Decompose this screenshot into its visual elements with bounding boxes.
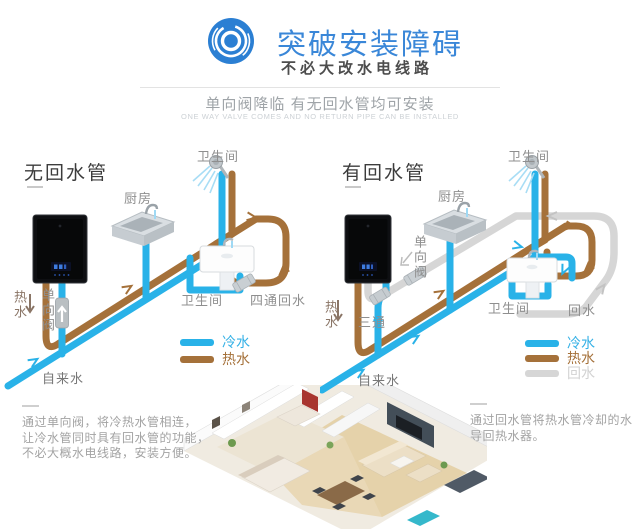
tagline-chinese: 单向阀降临 有无回水管均可安装 (0, 93, 640, 114)
footnote-line: 通过回水管将热水管冷却的水 (470, 413, 640, 429)
label-hot-water: 热水 (10, 290, 29, 320)
label-tap-water: 自来水 (42, 368, 84, 387)
legend-hot-label: 热水 (222, 349, 250, 369)
label-bathroom: 卫生间 (488, 298, 530, 317)
label-kitchen: 厨房 (124, 188, 152, 207)
footnote-line: 让冷水管同时具有回水管的功能， (22, 431, 252, 447)
legend-return: 回水 (525, 363, 595, 383)
footnote-right: 通过回水管将热水管冷却的水 导回热水器。 (470, 403, 640, 444)
water-heater (345, 215, 391, 283)
label-bathroom: 卫生间 (181, 290, 223, 309)
legend-hot-swatch (525, 355, 559, 362)
footnote-dash (470, 403, 487, 405)
diagram-with-return-pipe: 有回水管 (320, 140, 640, 395)
footnote-left: 通过单向阀，将冷热水管相连， 让冷水管同时具有回水管的功能， 不必大概水电线路，… (22, 405, 252, 462)
tagline-english: ONE WAY VALVE COMES AND NO RETURN PIPE C… (0, 112, 640, 121)
check-valve (56, 298, 69, 328)
title-dash (27, 186, 43, 188)
label-return-water: 回水 (568, 300, 596, 319)
label-check-valve: 单向阀 (38, 288, 57, 333)
legend-hot-swatch (180, 356, 214, 363)
label-hot-water: 热水 (321, 300, 340, 330)
water-heater-logo-icon (207, 17, 255, 65)
label-tap-water: 自来水 (358, 370, 400, 389)
label-check-valve: 单向阀 (410, 235, 429, 280)
label-four-way-return: 四通回水 (250, 290, 306, 309)
footnote-line: 不必大概水电线路，安装方便。 (22, 446, 252, 462)
footnote-line: 导回热水器。 (470, 429, 640, 445)
header-divider (140, 87, 500, 88)
legend-return-label: 回水 (567, 363, 595, 383)
page-subtitle: 不必大改水电线路 (281, 57, 433, 78)
label-bathroom-top: 卫生间 (508, 146, 550, 165)
footnote-line: 通过单向阀，将冷热水管相连， (22, 415, 252, 431)
title-dash (345, 186, 361, 188)
water-heater (33, 215, 87, 283)
infographic-page: 突破安装障碍 不必大改水电线路 单向阀降临 有无回水管均可安装 ONE WAY … (0, 0, 640, 529)
diagram-title: 有回水管 (342, 158, 426, 185)
legend-cold-swatch (525, 340, 559, 347)
diagram-title: 无回水管 (24, 158, 108, 185)
label-tee: 三通 (358, 312, 386, 331)
footnote-dash (22, 405, 39, 407)
legend-cold-swatch (180, 339, 214, 346)
legend-hot: 热水 (180, 349, 250, 369)
label-bathroom-top: 卫生间 (197, 146, 239, 165)
legend-return-swatch (525, 370, 559, 377)
kitchen-sink (112, 205, 174, 246)
label-kitchen: 厨房 (438, 186, 466, 205)
diagram-no-return-pipe: 无回水管 (0, 140, 320, 395)
